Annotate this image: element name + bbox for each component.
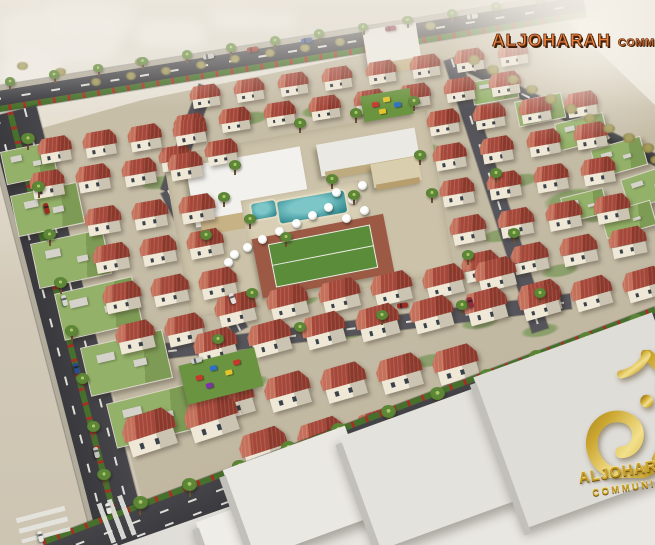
palm-tree [326,174,338,189]
desert-tree [487,65,499,75]
title-sub: COMMUNITY [618,37,655,49]
car [466,13,478,20]
palm-tree [182,50,192,63]
car [396,302,408,308]
villa [408,53,442,80]
palm-tree [456,300,468,315]
villa [431,141,469,172]
palm-tree [447,9,457,22]
desert-tree [507,75,519,85]
villa [188,83,222,110]
aerial-render: ALJOHARAHCOMMUNITY ALJOHARAH COMMUNITY [0,0,655,545]
palm-tree [491,2,501,15]
pool-umbrella [230,250,239,259]
palm-tree [200,230,212,245]
palm-tree [270,36,280,49]
palm-tree [43,229,56,246]
palm-tree [133,496,148,515]
desert-tree [526,85,538,95]
pool-umbrella [324,203,333,212]
palm-tree [280,232,292,247]
pool-umbrella [358,181,367,190]
distant-building [135,18,205,48]
desert-tree [17,62,28,71]
pool-umbrella [292,219,301,228]
desert-tree [335,38,345,46]
palm-tree [358,23,368,36]
palm-tree [534,288,546,303]
palm-tree [5,77,15,90]
community-scene [0,0,655,545]
palm-tree [76,373,89,390]
palm-tree [376,310,388,325]
desert-tree [161,67,171,75]
villa [171,116,209,147]
desert-tree [91,78,101,86]
villa [81,128,119,159]
palm-tree [182,478,197,497]
title-main: ALJOHARAH [492,30,611,50]
palm-tree [137,57,147,70]
car [300,37,312,44]
desert-tree [565,104,577,114]
palm-tree [490,168,502,183]
brand-logo: ALJOHARAH COMMUNITY [566,336,655,545]
villa [126,122,164,153]
distant-building [210,8,260,30]
pool-umbrella [243,243,252,252]
desert-tree [642,143,654,153]
pool-umbrella [360,206,369,215]
palm-tree [65,325,78,342]
desert-tree [196,61,206,69]
palm-tree [402,16,412,29]
villa [276,71,310,98]
villa [364,59,398,86]
villa [478,134,516,165]
palm-tree [32,181,45,198]
distant-building [45,0,135,38]
palm-tree [350,108,362,123]
palm-tree [408,96,420,111]
desert-tree [425,22,436,31]
palm-tree [294,118,306,133]
palm-tree [97,469,110,486]
palm-tree [314,29,324,42]
pool-umbrella [342,214,351,223]
palm-tree [54,277,67,294]
palm-tree [426,188,438,203]
villa [232,77,266,104]
palm-tree [218,192,230,207]
palm-tree [49,70,59,83]
desert-tree [623,133,635,143]
car [384,25,396,32]
palm-tree [212,334,224,349]
palm-tree [414,150,426,165]
palm-tree [93,64,103,77]
palm-tree [21,133,34,150]
project-title: ALJOHARAHCOMMUNITY [492,30,655,51]
pool-umbrella [258,235,267,244]
palm-tree [244,214,256,229]
palm-tree [87,421,100,438]
car [202,53,214,60]
palm-tree [229,160,241,175]
distant-building [255,12,295,30]
palm-tree [246,288,258,303]
palm-tree [462,250,474,265]
villa [525,127,563,158]
palm-tree [294,322,306,337]
pool-umbrella [308,211,317,220]
palm-tree [226,43,236,56]
car [246,46,258,53]
desert-tree [468,55,480,65]
villa [36,134,74,165]
villa [320,65,354,92]
palm-tree [348,190,360,205]
desert-tree [300,44,310,52]
palm-tree [508,228,520,243]
palm-tree [535,0,545,8]
